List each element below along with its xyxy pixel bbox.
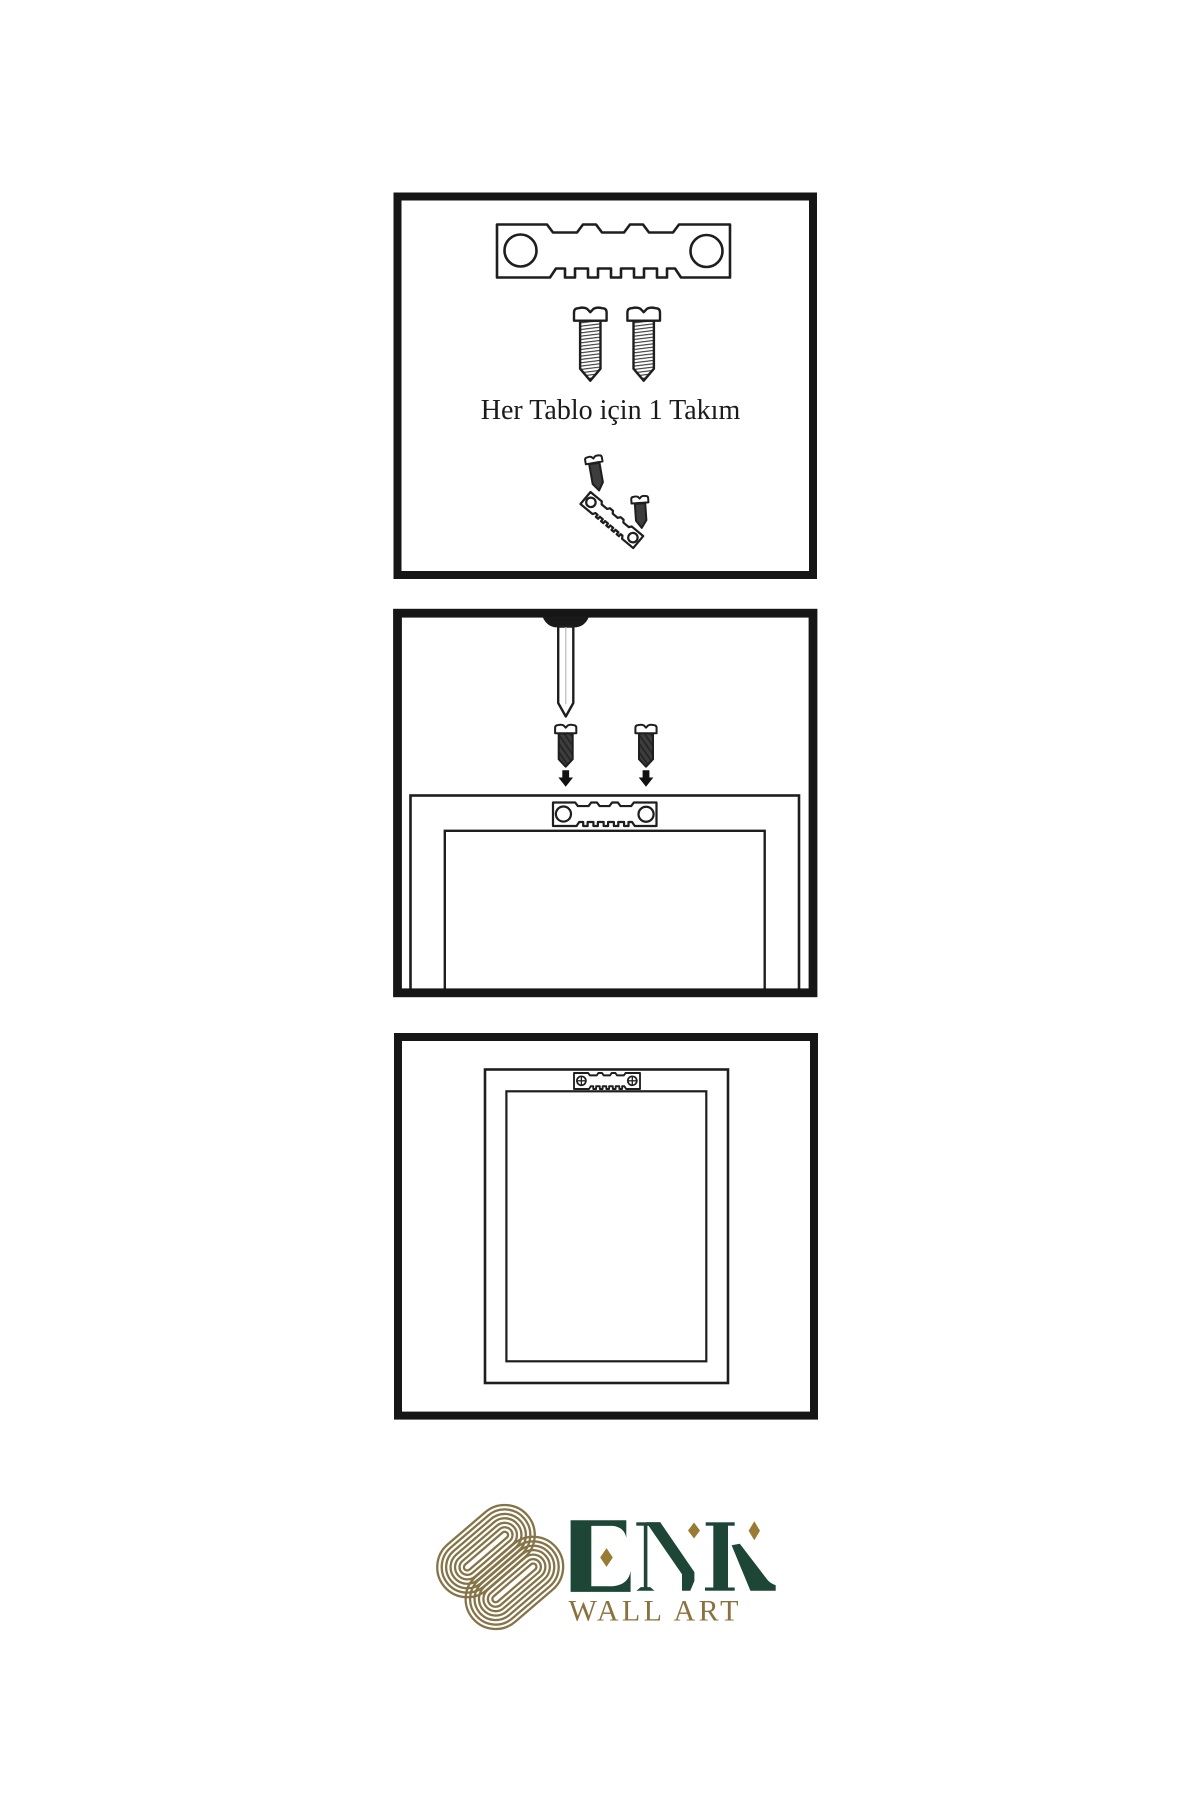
- svg-text:Her Tablo için 1 Takım: Her Tablo için 1 Takım: [481, 395, 741, 426]
- svg-text:WALL ART: WALL ART: [568, 1595, 741, 1628]
